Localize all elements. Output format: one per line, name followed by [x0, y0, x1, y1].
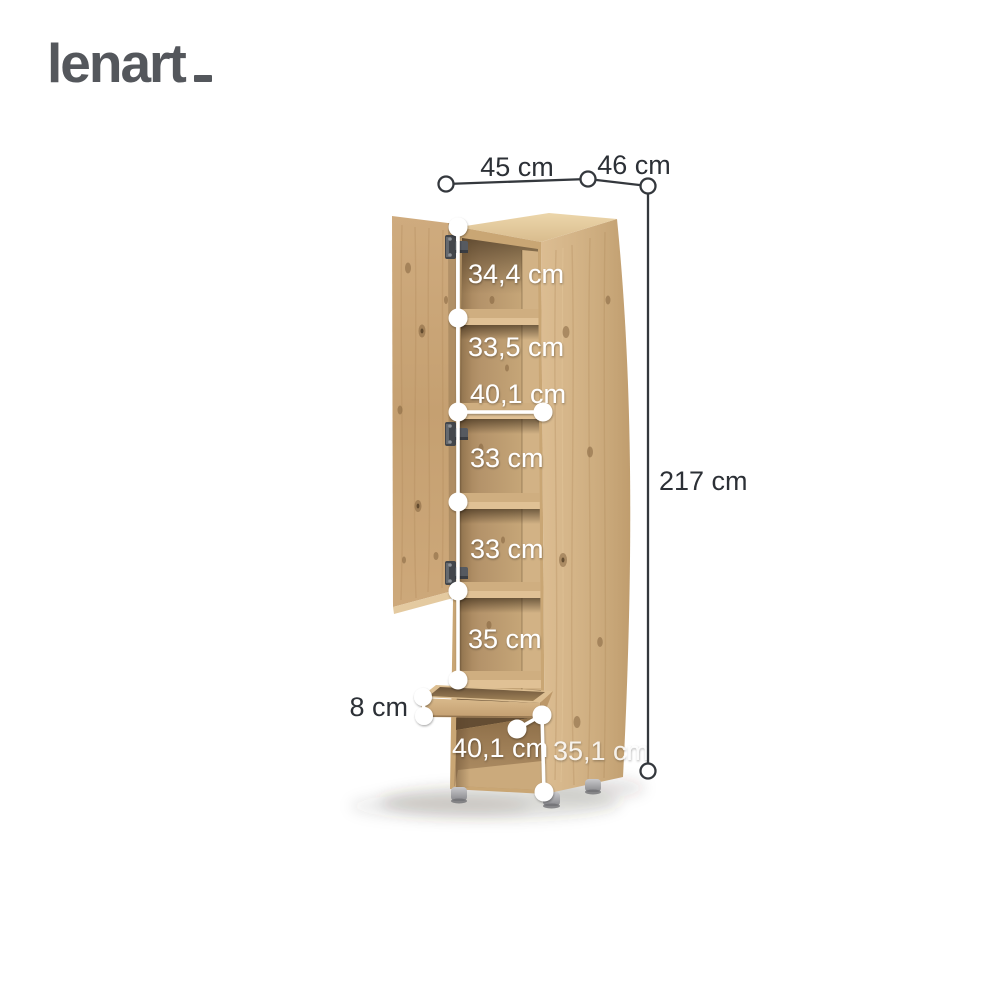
- dim-compartment5-label: 35 cm: [468, 624, 542, 654]
- cabinet-foot: [451, 787, 467, 804]
- dim-inner-width-label: 40,1 cm: [470, 379, 566, 409]
- dim-drawer-label: 8 cm: [349, 692, 408, 722]
- cabinet-shelf: [453, 582, 545, 613]
- cabinet-shelf: [453, 493, 545, 524]
- dim-depth-label: 46 cm: [597, 150, 671, 180]
- dim-compartment4-label: 33 cm: [470, 534, 544, 564]
- dim-compartment2-label: 33,5 cm: [468, 332, 564, 362]
- cabinet-side-panel: [541, 219, 630, 794]
- dim-bottom-width-label: 40,1 cm: [452, 733, 548, 763]
- dim-compartment3-label: 33 cm: [470, 443, 544, 473]
- dim-compartment1-label: 34,4 cm: [468, 259, 564, 289]
- dim-height-label: 217 cm: [659, 466, 748, 496]
- cabinet-illustration: 34,4 cm 33,5 cm 40,1 cm 33 cm 33 cm 35 c…: [0, 0, 1000, 1000]
- cabinet-door: [392, 216, 457, 614]
- dim-line-depth: [588, 179, 648, 186]
- product-dimension-diagram: lenart: [0, 0, 1000, 1000]
- dim-bottom-height-label: 35,1 cm: [553, 736, 649, 766]
- cabinet-foot: [585, 779, 601, 795]
- dim-width-label: 45 cm: [480, 152, 554, 182]
